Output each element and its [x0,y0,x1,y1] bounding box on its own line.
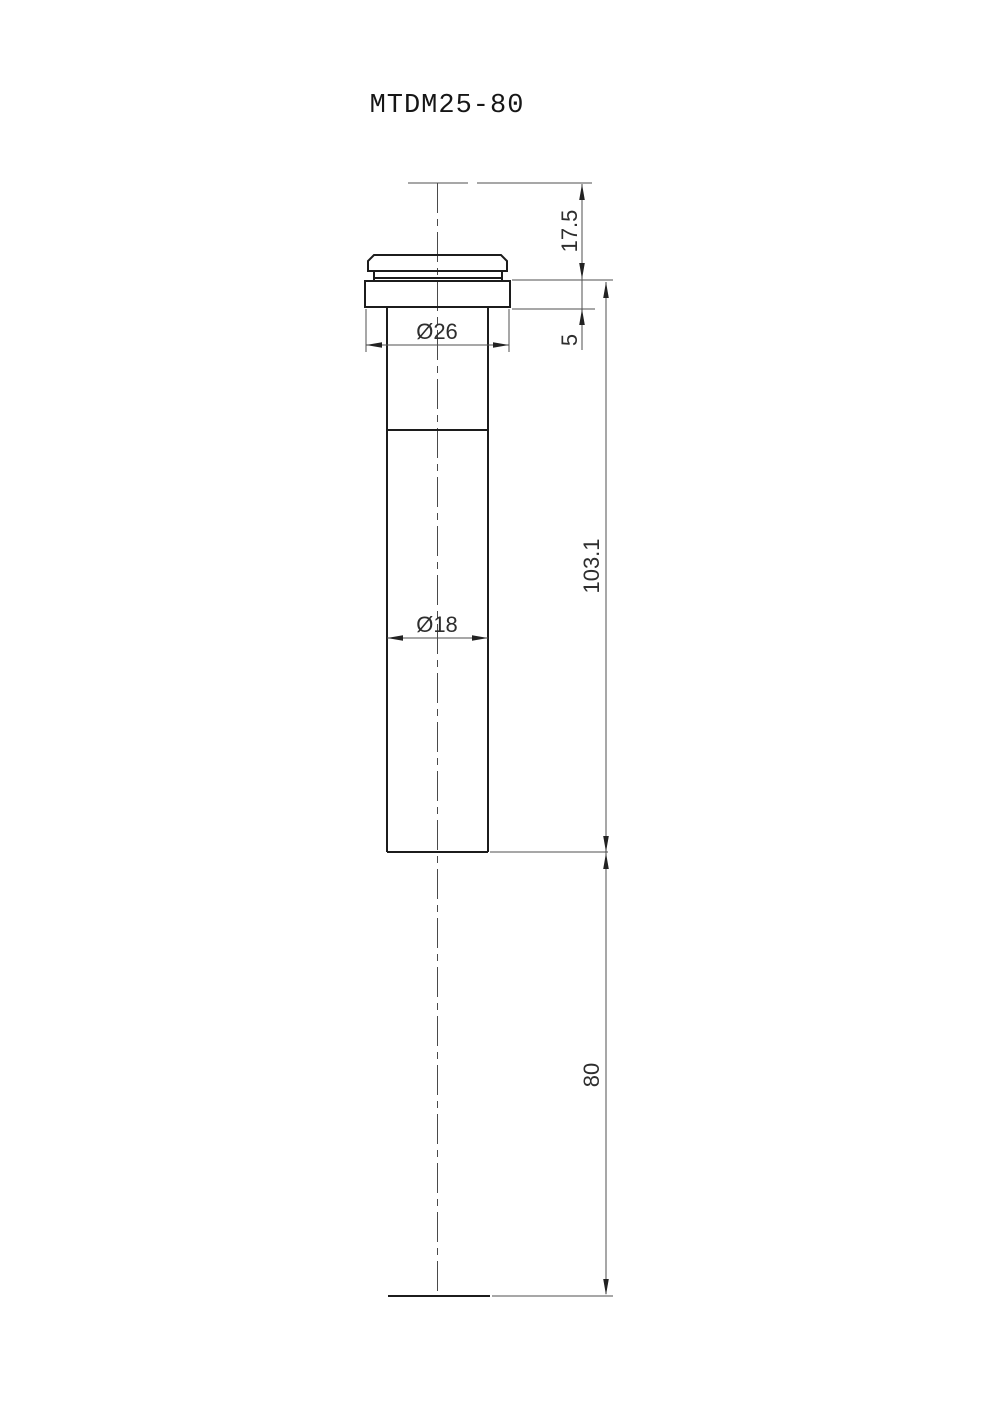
arrow-left-icon [387,635,403,641]
arrow-left-icon [366,342,382,348]
dim-label-flange-to-tip: 103.1 [579,538,604,593]
technical-drawing-canvas: MTDM25-80 [0,0,992,1403]
arrow-up-icon [603,853,609,869]
dim-label-protrusion: 80 [579,1063,604,1087]
extension-lines [366,280,613,1296]
dim-label-body-diameter: Ø18 [416,612,458,637]
arrow-right-icon [472,635,488,641]
dim-label-top-to-flange: 17.5 [557,210,582,253]
arrow-down-icon [603,1279,609,1295]
arrow-up-icon [603,282,609,298]
arrow-right-icon [493,342,509,348]
dimension-lines [366,184,606,1294]
drawing-title: MTDM25-80 [370,91,525,121]
arrow-down-icon [603,836,609,852]
arrow-up-icon [579,184,585,200]
dim-label-flange-diameter: Ø26 [416,319,458,344]
dim-label-flange-thickness: 5 [557,334,582,346]
arrow-down-icon [579,263,585,279]
arrow-up-icon [579,309,585,325]
